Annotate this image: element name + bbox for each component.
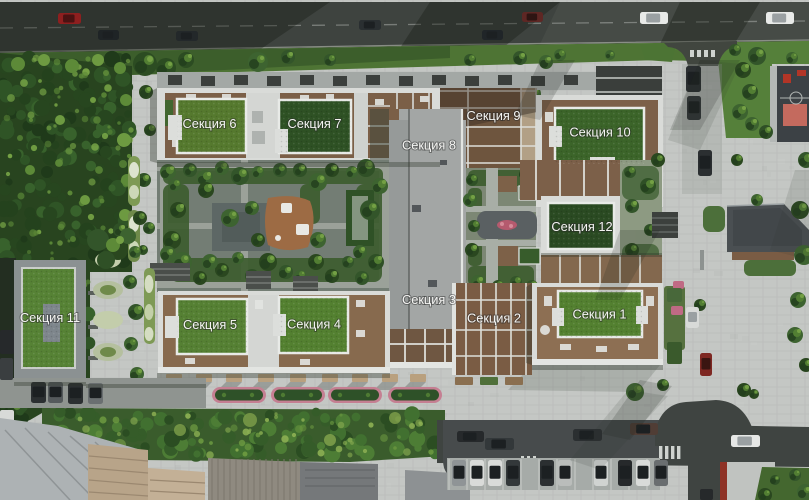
svg-text:Секция 2: Секция 2 <box>467 311 521 326</box>
svg-text:Секция 8: Секция 8 <box>402 138 456 153</box>
svg-text:Секция 9: Секция 9 <box>466 108 520 123</box>
svg-text:Секция 4: Секция 4 <box>287 317 341 332</box>
svg-text:Секция 1: Секция 1 <box>572 307 626 322</box>
svg-text:Секция 3: Секция 3 <box>402 292 456 307</box>
svg-text:Секция 10: Секция 10 <box>569 125 630 140</box>
svg-text:Секция 11: Секция 11 <box>20 310 80 325</box>
svg-text:Секция 6: Секция 6 <box>182 116 236 131</box>
svg-text:Секция 7: Секция 7 <box>287 116 341 131</box>
svg-text:Секция 12: Секция 12 <box>551 219 612 234</box>
svg-text:Секция 5: Секция 5 <box>183 317 237 332</box>
